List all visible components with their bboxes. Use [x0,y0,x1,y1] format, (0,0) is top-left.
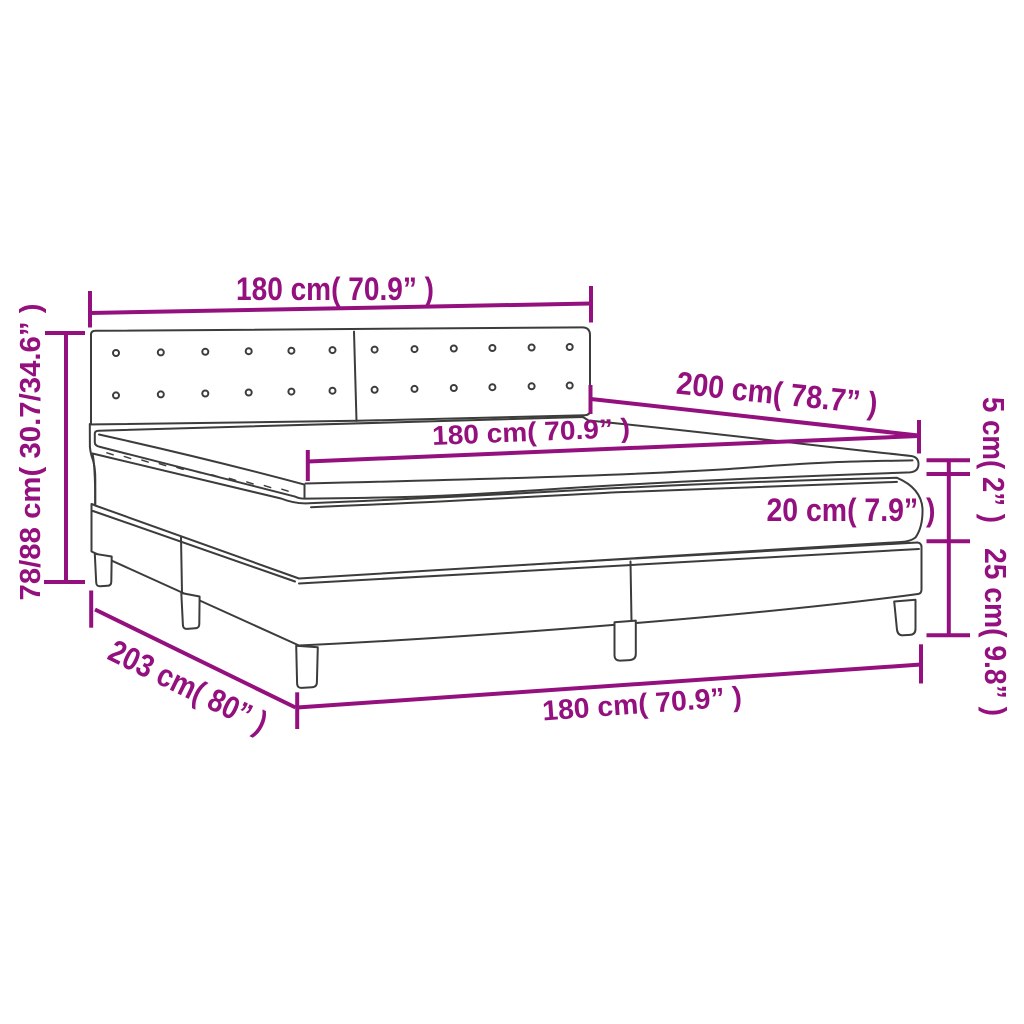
svg-text:78/88 cm( 30.7/34.6” ): 78/88 cm( 30.7/34.6” ) [15,304,47,601]
svg-text:25 cm( 9.8” ): 25 cm( 9.8” ) [978,548,1013,716]
svg-text:20 cm( 7.9” ): 20 cm( 7.9” ) [767,492,936,528]
svg-text:5 cm( 2” ): 5 cm( 2” ) [976,397,1011,523]
svg-text:180 cm( 70.9” ): 180 cm( 70.9” ) [236,271,434,307]
